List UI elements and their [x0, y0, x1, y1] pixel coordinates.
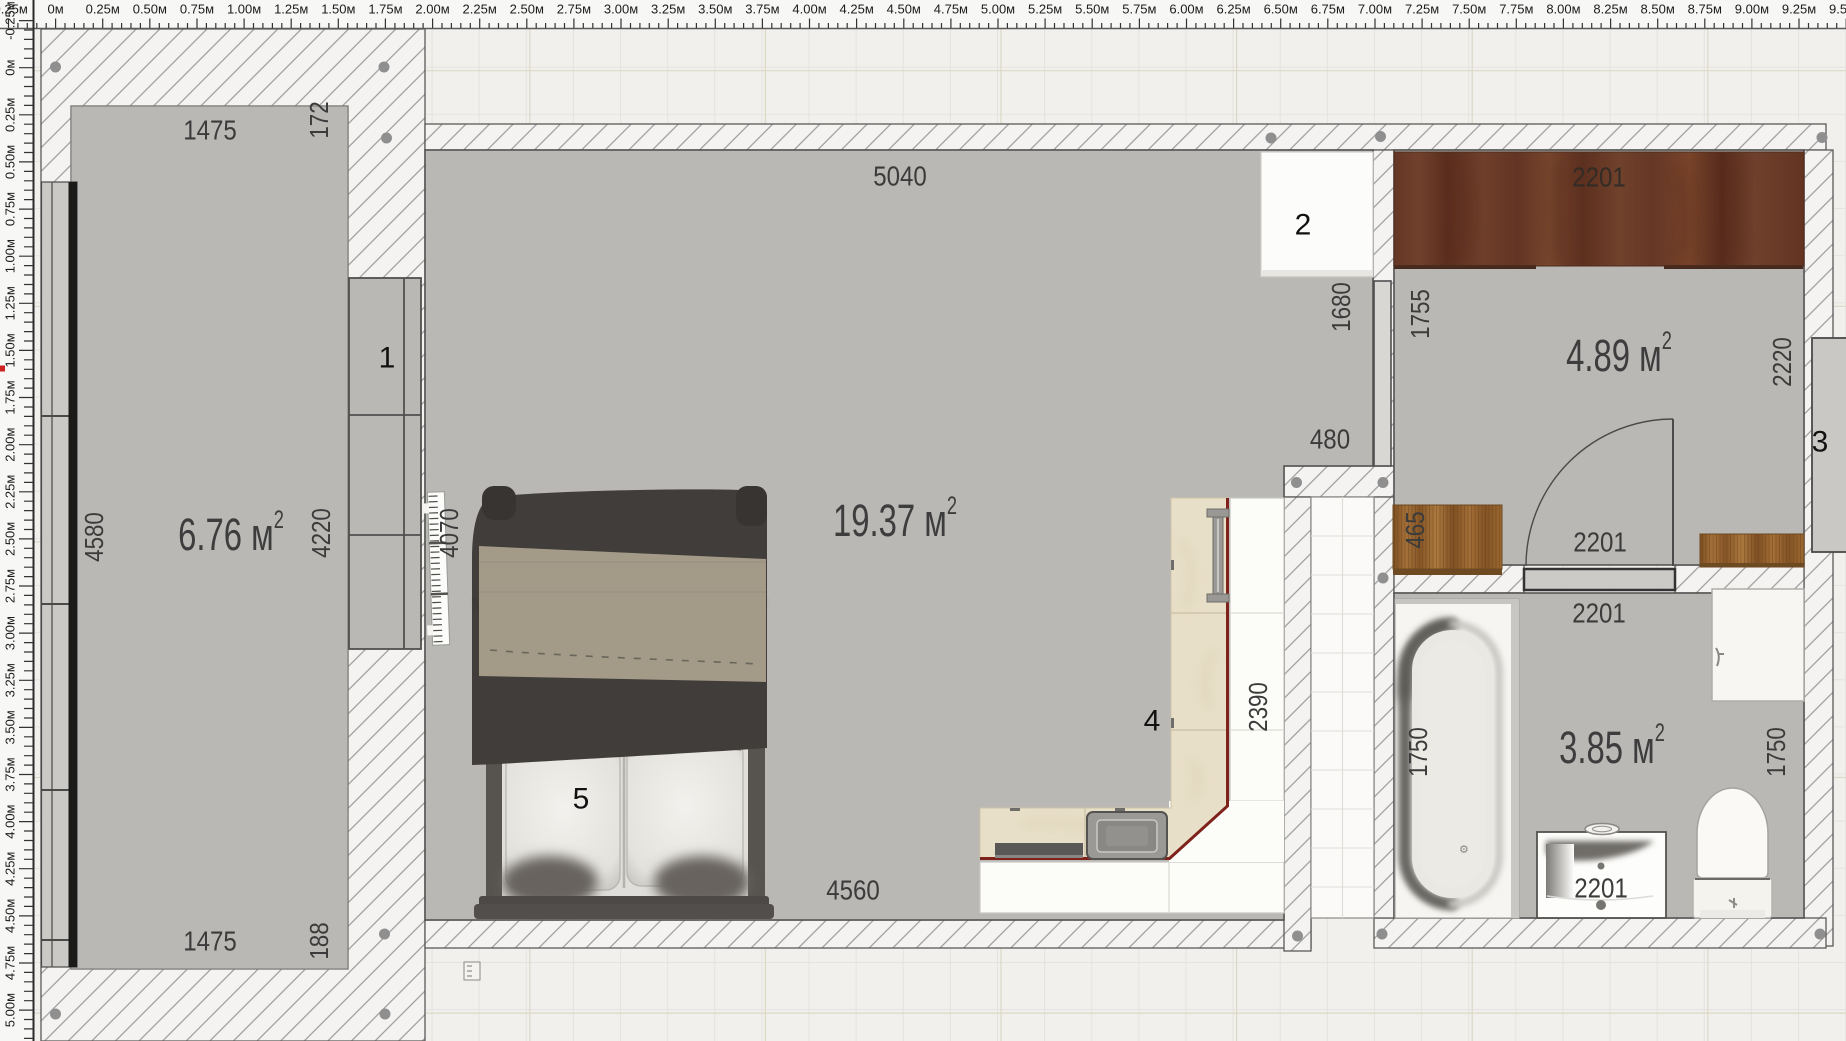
svg-text:8.00м: 8.00м — [1546, 2, 1580, 17]
svg-text:3.50м: 3.50м — [3, 710, 18, 744]
svg-text:1750: 1750 — [1405, 727, 1434, 777]
svg-text:6.25м: 6.25м — [1216, 2, 1250, 17]
svg-text:1.00м: 1.00м — [227, 2, 261, 17]
svg-text:1680: 1680 — [1328, 282, 1357, 332]
svg-text:1.25м: 1.25м — [3, 286, 18, 320]
svg-text:4.89 м2: 4.89 м2 — [1566, 326, 1672, 381]
svg-text:3.50м: 3.50м — [698, 2, 732, 17]
svg-text:0.25м: 0.25м — [3, 98, 18, 132]
svg-text:172: 172 — [306, 101, 335, 138]
svg-text:188: 188 — [306, 922, 335, 959]
svg-text:7.50м: 7.50м — [1452, 2, 1486, 17]
svg-text:3.00м: 3.00м — [3, 616, 18, 650]
svg-text:5.50м: 5.50м — [1075, 2, 1109, 17]
svg-text:2.25м: 2.25м — [3, 475, 18, 509]
svg-text:5: 5 — [573, 783, 590, 816]
svg-text:2201: 2201 — [1574, 872, 1628, 904]
svg-text:4.25м: 4.25м — [3, 852, 18, 886]
svg-text:0м: 0м — [3, 60, 18, 76]
svg-text:2.50м: 2.50м — [3, 522, 18, 556]
svg-text:0.50м: 0.50м — [3, 145, 18, 179]
svg-text:1.75м: 1.75м — [3, 380, 18, 414]
svg-text:2220: 2220 — [1769, 337, 1798, 387]
svg-text:8.75м: 8.75м — [1688, 2, 1722, 17]
svg-text:7.25м: 7.25м — [1405, 2, 1439, 17]
svg-text:3.25м: 3.25м — [651, 2, 685, 17]
svg-text:5.00м: 5.00м — [3, 993, 18, 1027]
svg-text:1.75м: 1.75м — [368, 2, 402, 17]
svg-text:0.75м: 0.75м — [180, 2, 214, 17]
svg-text:1755: 1755 — [1407, 289, 1436, 339]
svg-text:7.00м: 7.00м — [1358, 2, 1392, 17]
svg-text:4560: 4560 — [826, 874, 880, 906]
svg-text:2390: 2390 — [1245, 682, 1274, 732]
svg-text:4070: 4070 — [436, 508, 465, 558]
svg-text:7.75м: 7.75м — [1499, 2, 1533, 17]
svg-text:3.00м: 3.00м — [604, 2, 638, 17]
svg-text:1750: 1750 — [1763, 727, 1792, 777]
svg-text:-0.25м: -0.25м — [3, 1, 18, 40]
svg-text:1.50м: 1.50м — [321, 2, 355, 17]
svg-text:2.75м: 2.75м — [3, 569, 18, 603]
svg-text:2201: 2201 — [1572, 597, 1626, 629]
svg-text:4.00м: 4.00м — [3, 804, 18, 838]
svg-text:9.25м: 9.25м — [1782, 2, 1816, 17]
svg-text:3.85 м2: 3.85 м2 — [1559, 718, 1665, 773]
svg-text:465: 465 — [1402, 511, 1431, 548]
svg-text:0м: 0м — [48, 2, 64, 17]
svg-text:1.50м: 1.50м — [3, 333, 18, 367]
svg-text:0.75м: 0.75м — [3, 192, 18, 226]
svg-text:4220: 4220 — [308, 508, 337, 558]
svg-text:5.25м: 5.25м — [1028, 2, 1062, 17]
svg-text:5.00м: 5.00м — [981, 2, 1015, 17]
svg-text:3.75м: 3.75м — [745, 2, 779, 17]
svg-text:4.50м: 4.50м — [887, 2, 921, 17]
svg-text:3.25м: 3.25м — [3, 663, 18, 697]
svg-text:5040: 5040 — [873, 160, 927, 192]
svg-text:4.75м: 4.75м — [3, 946, 18, 980]
svg-text:⚙: ⚙ — [1459, 844, 1469, 856]
svg-text:8.25м: 8.25м — [1593, 2, 1627, 17]
svg-text:2.75м: 2.75м — [557, 2, 591, 17]
svg-text:0.25м: 0.25м — [86, 2, 120, 17]
svg-text:1475: 1475 — [183, 114, 237, 146]
svg-text:3.75м: 3.75м — [3, 757, 18, 791]
svg-text:19.37 м2: 19.37 м2 — [833, 491, 957, 546]
svg-text:4.00м: 4.00м — [792, 2, 826, 17]
svg-text:2.00м: 2.00м — [3, 427, 18, 461]
svg-text:2: 2 — [1295, 209, 1312, 242]
svg-text:8.50м: 8.50м — [1641, 2, 1675, 17]
svg-text:9.50м: 9.50м — [1829, 2, 1846, 17]
svg-text:4: 4 — [1144, 705, 1161, 738]
svg-text:1.25м: 1.25м — [274, 2, 308, 17]
svg-text:4.25м: 4.25м — [840, 2, 874, 17]
svg-text:6.00м: 6.00м — [1169, 2, 1203, 17]
svg-text:1: 1 — [379, 342, 396, 375]
svg-text:5.75м: 5.75м — [1122, 2, 1156, 17]
svg-text:2.00м: 2.00м — [415, 2, 449, 17]
svg-text:4580: 4580 — [81, 512, 110, 562]
svg-text:1475: 1475 — [183, 925, 237, 957]
svg-text:6.75м: 6.75м — [1311, 2, 1345, 17]
svg-text:6.76 м2: 6.76 м2 — [178, 505, 284, 560]
svg-text:0.50м: 0.50м — [133, 2, 167, 17]
svg-text:1.00м: 1.00м — [3, 239, 18, 273]
svg-text:4.75м: 4.75м — [934, 2, 968, 17]
svg-text:2.50м: 2.50м — [510, 2, 544, 17]
svg-text:2.25м: 2.25м — [463, 2, 497, 17]
svg-text:2201: 2201 — [1573, 526, 1627, 558]
svg-text:6.50м: 6.50м — [1264, 2, 1298, 17]
svg-text:9.00м: 9.00м — [1735, 2, 1769, 17]
svg-text:3: 3 — [1812, 426, 1829, 459]
svg-text:4.50м: 4.50м — [3, 899, 18, 933]
svg-text:480: 480 — [1310, 423, 1350, 455]
svg-text:2201: 2201 — [1572, 161, 1626, 193]
